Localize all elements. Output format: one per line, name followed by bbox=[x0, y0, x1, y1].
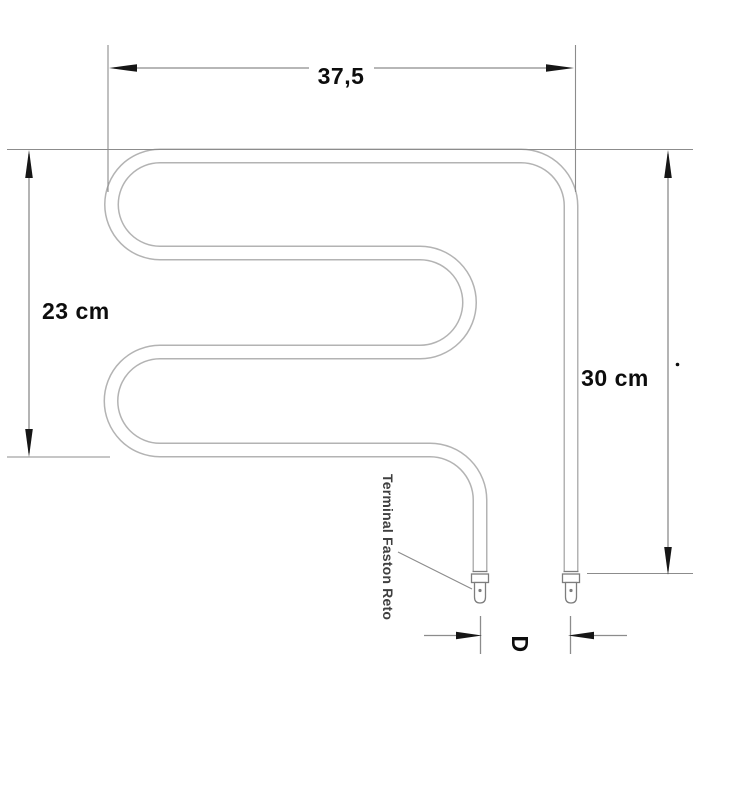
terminal-left-hole bbox=[478, 589, 481, 592]
arrow-d-right bbox=[568, 632, 594, 640]
arrow-right-height-down bbox=[664, 547, 672, 575]
terminal-right bbox=[563, 572, 580, 604]
tube-outline bbox=[111, 156, 571, 572]
terminal-right-collar bbox=[563, 574, 580, 583]
technical-drawing-canvas: 37,5 23 cm 30 cm D Terminal Faston Reto bbox=[0, 0, 730, 800]
stray-dot bbox=[676, 363, 680, 367]
terminal-right-pin bbox=[566, 583, 577, 604]
arrow-d-left bbox=[456, 632, 482, 640]
tube-fill bbox=[111, 156, 571, 572]
terminal-left bbox=[472, 572, 489, 604]
arrow-width-left bbox=[109, 64, 137, 72]
left-height-label: 23 cm bbox=[42, 298, 110, 324]
terminal-faston-label: Terminal Faston Reto bbox=[380, 474, 396, 620]
terminals bbox=[472, 572, 580, 604]
arrow-width-right bbox=[546, 64, 574, 72]
top-width-label: 37,5 bbox=[318, 63, 365, 89]
terminal-right-hole bbox=[569, 589, 572, 592]
arrow-left-height-down bbox=[25, 429, 33, 457]
heating-element bbox=[111, 156, 571, 572]
terminal-left-pin bbox=[475, 583, 486, 604]
terminal-spacing-label: D bbox=[507, 635, 533, 652]
terminal-label-leader-line bbox=[398, 552, 472, 589]
arrow-left-height-up bbox=[25, 150, 33, 178]
annotation-labels: Terminal Faston Reto bbox=[380, 474, 396, 620]
right-height-label: 30 cm bbox=[581, 365, 649, 391]
terminal-left-collar bbox=[472, 574, 489, 583]
heating-element-diagram: 37,5 23 cm 30 cm D Terminal Faston Reto bbox=[0, 0, 730, 800]
arrow-right-height-up bbox=[664, 150, 672, 178]
